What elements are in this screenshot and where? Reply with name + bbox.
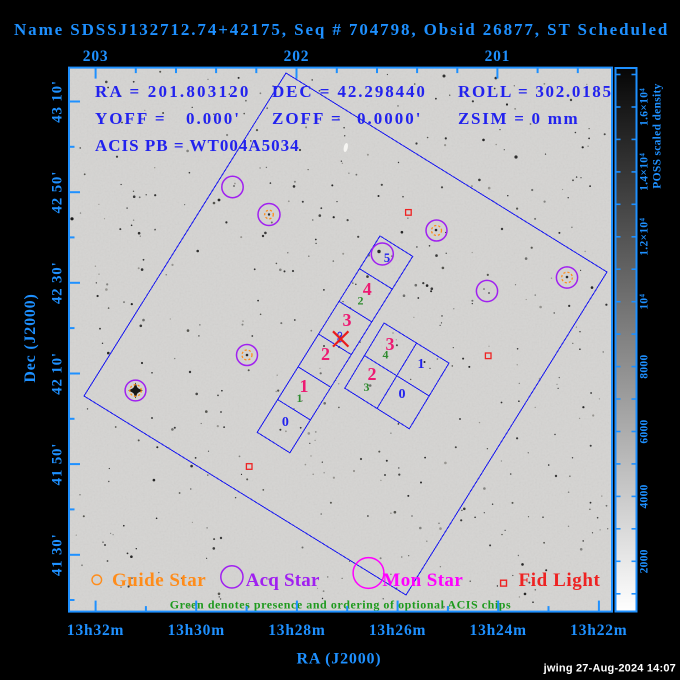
svg-text:Name SDSSJ132712.74+42175, Seq: Name SDSSJ132712.74+42175, Seq # 704798,… <box>14 20 669 39</box>
svg-text:41 30': 41 30' <box>50 533 66 576</box>
svg-text:43 10': 43 10' <box>50 80 66 123</box>
svg-text:0.0000': 0.0000' <box>357 109 422 128</box>
svg-text:203: 203 <box>83 48 109 65</box>
svg-text:Fid Light: Fid Light <box>519 570 601 591</box>
svg-text:13h32m: 13h32m <box>67 622 124 639</box>
svg-text:ROLL = 302.0185: ROLL = 302.0185 <box>458 82 613 101</box>
svg-text:ZSIM = 0 mm: ZSIM = 0 mm <box>458 109 579 128</box>
svg-text:4: 4 <box>383 348 389 362</box>
svg-text:42 10': 42 10' <box>50 352 66 395</box>
svg-text:Dec (J2000): Dec (J2000) <box>22 293 39 382</box>
svg-text:DEC = 42.298440: DEC = 42.298440 <box>272 82 427 101</box>
svg-text:jwing 27-Aug-2024 14:07: jwing 27-Aug-2024 14:07 <box>543 663 676 675</box>
svg-text:Acq Star: Acq Star <box>246 570 320 591</box>
svg-text:Green denotes presence and ord: Green denotes presence and ordering of o… <box>170 598 511 612</box>
svg-text:ZOFF =: ZOFF = <box>272 109 343 128</box>
svg-text:13h26m: 13h26m <box>369 622 426 639</box>
svg-text:6000: 6000 <box>639 419 651 443</box>
svg-text:201: 201 <box>485 48 511 65</box>
svg-text:Guide Star: Guide Star <box>112 570 206 591</box>
svg-text:3: 3 <box>343 310 352 330</box>
svg-text:8000: 8000 <box>639 354 651 378</box>
svg-text:3: 3 <box>364 380 370 394</box>
svg-text:1.6×10⁴: 1.6×10⁴ <box>639 88 651 126</box>
svg-text:202: 202 <box>284 48 310 65</box>
svg-text:10⁴: 10⁴ <box>639 294 651 310</box>
svg-text:RA (J2000): RA (J2000) <box>297 651 382 668</box>
svg-text:2: 2 <box>358 294 364 308</box>
svg-text:Mon Star: Mon Star <box>382 570 463 591</box>
svg-text:2: 2 <box>321 344 330 364</box>
svg-text:13h22m: 13h22m <box>570 622 627 639</box>
svg-text:42 30': 42 30' <box>50 261 66 304</box>
svg-text:POSS scaled density: POSS scaled density <box>652 83 664 188</box>
svg-text:0: 0 <box>282 415 289 430</box>
svg-text:13h30m: 13h30m <box>168 622 225 639</box>
svg-text:ACIS PB = WT004A5034: ACIS PB = WT004A5034 <box>95 136 300 155</box>
svg-text:4000: 4000 <box>639 484 651 508</box>
svg-text:0: 0 <box>399 387 406 402</box>
svg-text:1.4×10⁴: 1.4×10⁴ <box>639 153 651 191</box>
svg-text:41 50': 41 50' <box>50 443 66 486</box>
svg-text:42 50': 42 50' <box>50 171 66 214</box>
svg-text:0.000': 0.000' <box>186 109 241 128</box>
svg-text:13h28m: 13h28m <box>268 622 325 639</box>
svg-text:YOFF =: YOFF = <box>95 109 167 128</box>
svg-text:RA = 201.803120: RA = 201.803120 <box>95 82 251 101</box>
svg-text:1: 1 <box>418 357 425 372</box>
svg-text:4: 4 <box>363 279 372 299</box>
svg-text:1: 1 <box>297 391 303 405</box>
svg-text:2000: 2000 <box>639 549 651 573</box>
svg-text:13h24m: 13h24m <box>470 622 527 639</box>
svg-text:1.2×10⁴: 1.2×10⁴ <box>639 218 651 256</box>
